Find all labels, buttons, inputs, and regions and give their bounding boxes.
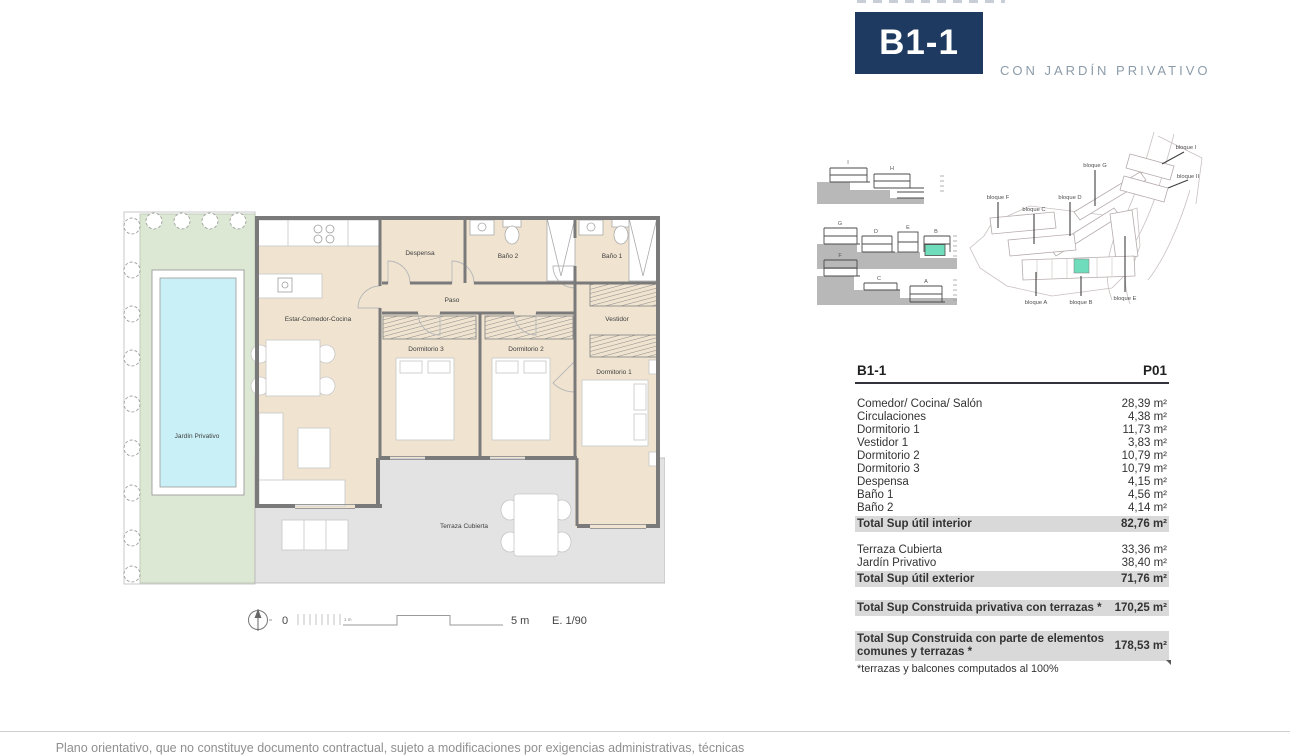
site-sections-drawing: I H G D E B F C A (812, 138, 962, 306)
section-label-d: D (874, 229, 878, 235)
scale-staircase (343, 616, 503, 626)
section-label-h: H (890, 166, 894, 172)
pool (152, 270, 244, 495)
cropped-text-remnant (857, 0, 1005, 3)
label-bano2: Baño 2 (498, 253, 519, 260)
total-interior-row: Total Sup útil interior82,76 m² (855, 516, 1169, 532)
table-row: Baño 14,56 m² (855, 489, 1169, 502)
section-label-c: C (877, 276, 881, 282)
floor-plan: Despensa Baño 2 Baño 1 Paso Estar-Comedo… (120, 208, 665, 588)
section-label-a: A (924, 279, 928, 285)
label-bano1: Baño 1 (602, 253, 623, 260)
floorplan-sheet: B1-1 CON JARDÍN PRIVATIVO (0, 0, 1290, 755)
section-label-g: G (838, 221, 842, 227)
table-row: Despensa4,15 m² (855, 476, 1169, 489)
unit-name: B1-1 (879, 23, 959, 63)
table-row: Dormitorio 111,73 m² (855, 424, 1169, 437)
label-estar: Estar-Comedor-Cocina (285, 316, 352, 323)
label-jardin: Jardín Privativo (175, 433, 220, 440)
section-elevation-ticks (940, 176, 957, 300)
scale-five-meters: 5 m (511, 615, 529, 627)
map-label-b: bloque B (1070, 300, 1093, 306)
bedroom2-bed (492, 358, 550, 440)
label-vestidor: Vestidor (605, 316, 629, 323)
scale-zero: 0 (282, 615, 288, 627)
table-footnote: *terrazas y balcones computados al 100% (855, 661, 1169, 675)
table-floor-name: P01 (1143, 363, 1167, 378)
table-row: Terraza Cubierta33,36 m² (855, 544, 1169, 557)
scale-ticks (298, 614, 340, 625)
north-arrow-icon (249, 609, 273, 631)
scale-ratio: E. 1/90 (552, 615, 587, 627)
total-comunes-row: Total Sup Construida con parte de elemen… (855, 631, 1169, 661)
scale-bar-drawing: 0 1 m 5 m E. 1/90 (240, 604, 600, 636)
site-sections: I H G D E B F C A (812, 138, 962, 306)
map-label-d: bloque D (1058, 195, 1081, 201)
table-row: Baño 24,14 m² (855, 502, 1169, 515)
bedroom3-bed (396, 358, 454, 440)
footer-disclaimer: Plano orientativo, que no constituye doc… (55, 741, 745, 755)
table-row: Vestidor 13,83 m² (855, 437, 1169, 450)
section-label-b: B (934, 229, 938, 235)
table-row: Dormitorio 310,79 m² (855, 463, 1169, 476)
unit-badge: B1-1 (855, 12, 983, 74)
footer-divider (0, 731, 1290, 732)
table-row: Jardín Privativo38,40 m² (855, 557, 1169, 570)
label-paso: Paso (445, 297, 460, 304)
table-row: Dormitorio 210,79 m² (855, 450, 1169, 463)
map-label-g: bloque G (1083, 163, 1107, 169)
comment-marker (1166, 660, 1171, 665)
label-despensa: Despensa (405, 250, 435, 257)
map-label-f: bloque F (987, 195, 1010, 201)
areas-table: B1-1 P01 Comedor/ Cocina/ Salón28,39 m² … (855, 363, 1169, 675)
section-label-e: E (906, 225, 910, 231)
floor-plan-drawing: Despensa Baño 2 Baño 1 Paso Estar-Comedo… (120, 208, 665, 588)
map-label-ii: bloque II (1177, 174, 1200, 180)
total-exterior-row: Total Sup útil exterior71,76 m² (855, 571, 1169, 587)
highlighted-unit-map (1074, 259, 1089, 273)
label-dorm1: Dormitorio 1 (596, 369, 632, 376)
label-dorm3: Dormitorio 3 (408, 346, 444, 353)
table-unit-name: B1-1 (857, 363, 886, 378)
table-row: Comedor/ Cocina/ Salón28,39 m² (855, 398, 1169, 411)
unit-subtitle: CON JARDÍN PRIVATIVO (1000, 63, 1210, 78)
site-map-drawing: bloque F bloque C bloque D bloque G bloq… (962, 128, 1210, 316)
label-terraza: Terraza Cubierta (440, 523, 488, 530)
site-map: bloque F bloque C bloque D bloque G bloq… (962, 128, 1210, 316)
map-label-e: bloque E (1114, 296, 1137, 302)
section-terrain (817, 182, 957, 305)
label-dorm2: Dormitorio 2 (508, 346, 544, 353)
scale-one-meter: 1 m (344, 617, 352, 622)
table-row: Circulaciones4,38 m² (855, 411, 1169, 424)
section-label-i: I (847, 160, 849, 166)
scale-bar: 0 1 m 5 m E. 1/90 (240, 604, 600, 636)
map-label-i: bloque I (1176, 145, 1197, 151)
areas-table-header: B1-1 P01 (855, 363, 1169, 384)
total-privativa-row: Total Sup Construida privativa con terra… (855, 600, 1169, 616)
highlighted-unit-section (925, 245, 945, 256)
map-label-c: bloque C (1022, 207, 1045, 213)
map-label-a: bloque A (1025, 300, 1048, 306)
